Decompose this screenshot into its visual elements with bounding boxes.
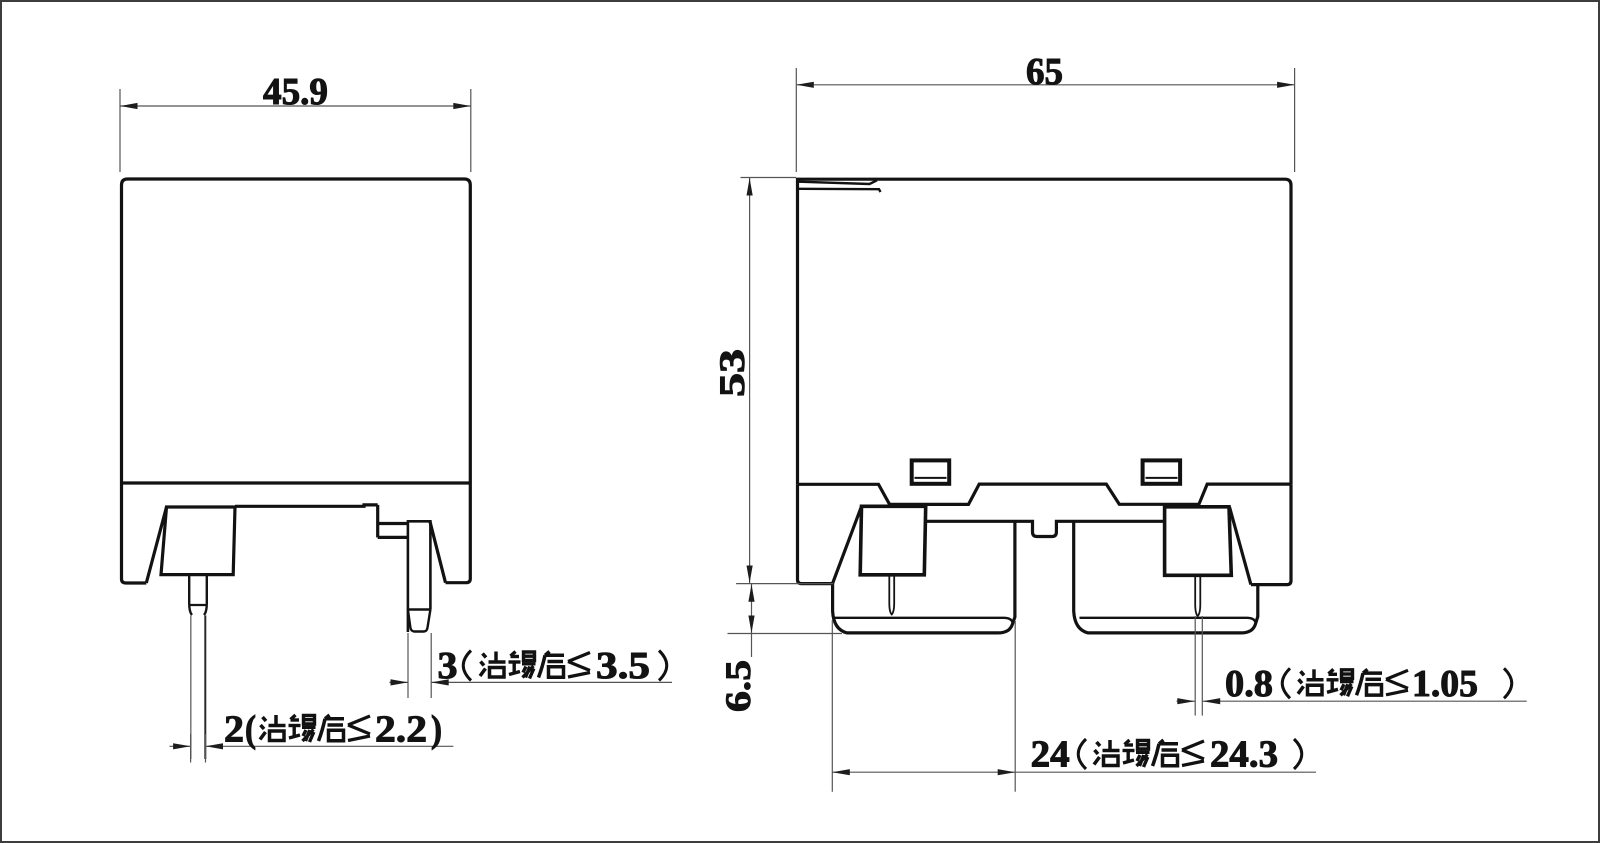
svg-text:24: 24 (1031, 734, 1070, 776)
svg-text:0.8: 0.8 (1225, 663, 1273, 705)
svg-text:3: 3 (438, 645, 458, 687)
svg-text:2.2: 2.2 (375, 709, 427, 751)
svg-text:(: ( (245, 709, 256, 751)
svg-text:45.9: 45.9 (263, 71, 328, 113)
svg-text:1.05: 1.05 (1412, 663, 1478, 705)
svg-text:53: 53 (712, 349, 752, 397)
svg-text:2: 2 (224, 709, 244, 751)
svg-text:65: 65 (1026, 51, 1063, 93)
svg-text:3.5: 3.5 (596, 645, 650, 687)
svg-text:24.3: 24.3 (1210, 734, 1278, 776)
svg-text:): ) (431, 709, 442, 751)
svg-text:6.5: 6.5 (718, 660, 758, 712)
